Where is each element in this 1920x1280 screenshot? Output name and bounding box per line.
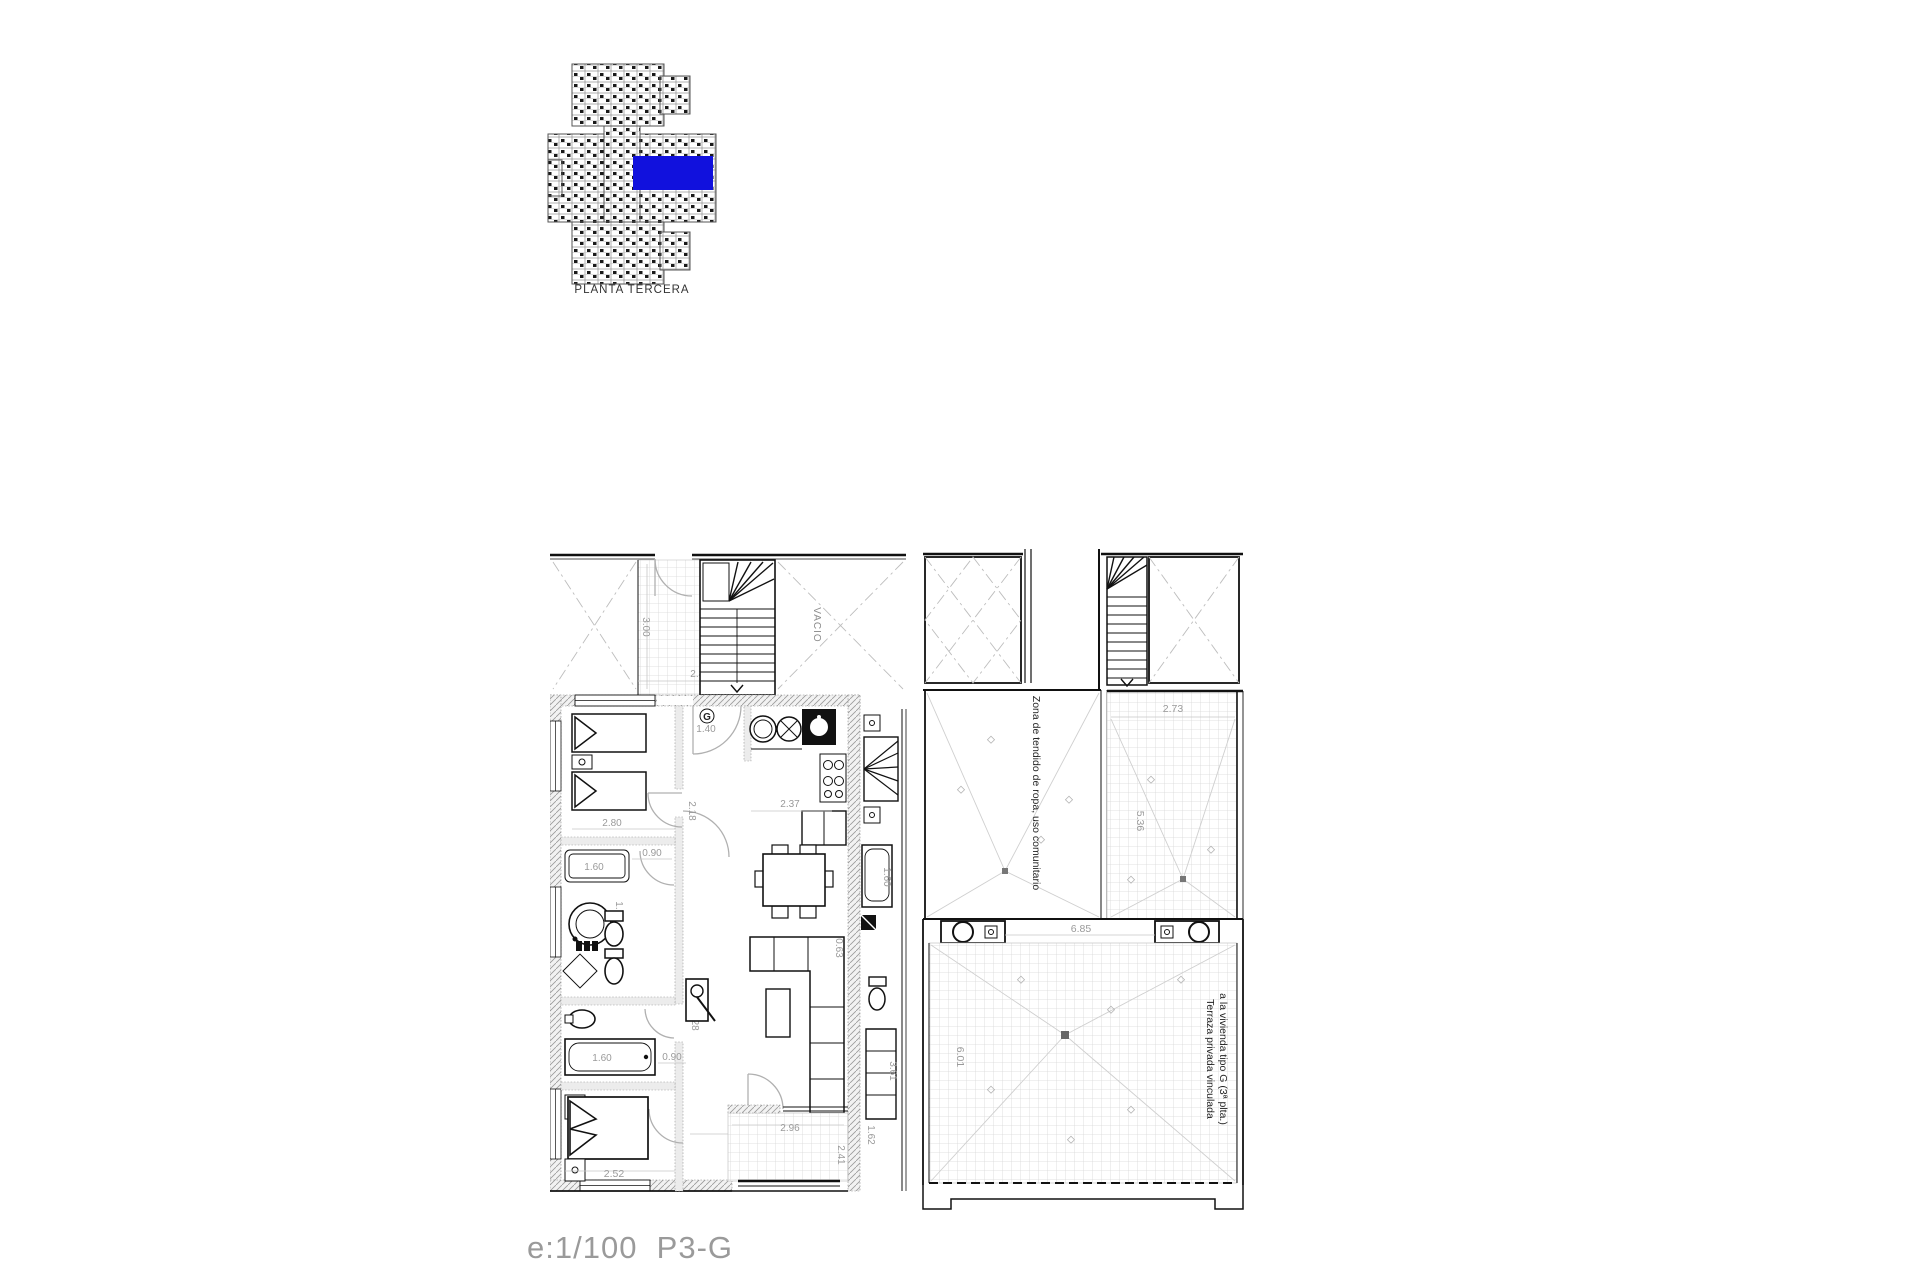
dim-label: 6.01 xyxy=(954,1047,966,1068)
dim-label: 1.62 xyxy=(865,1125,876,1145)
planter xyxy=(1155,921,1219,943)
bedroom-twin: 2.80 xyxy=(572,714,675,829)
towel-rail xyxy=(576,941,598,951)
window xyxy=(550,721,561,791)
unit-letter: G xyxy=(703,712,711,723)
shower-corner xyxy=(563,954,597,988)
neighbor-toilet xyxy=(869,977,886,1010)
drain xyxy=(1180,876,1186,882)
dim-label: 0.90 xyxy=(662,1052,682,1063)
hall: G 1.40 2.18 2.28 xyxy=(686,709,716,1031)
water-heater xyxy=(686,979,715,1021)
key-plan xyxy=(546,60,718,288)
terrace-floor-plan: Zona de tendido de ropa, uso comunitario… xyxy=(921,549,1246,1217)
dim-label: 1.60 xyxy=(584,862,604,873)
staircase xyxy=(700,560,775,695)
neighbor-washer xyxy=(861,915,876,930)
dim-label: 3.61 xyxy=(887,1061,898,1081)
corner-sofa xyxy=(750,937,844,1113)
planter-strip: 6.85 xyxy=(923,919,1243,943)
floor-plan-sheet: PLANTA TERCERA 3.00 xyxy=(0,0,1920,1280)
private-terrace-label-2: a la vivienda tipo G (3ª plta.) xyxy=(1217,993,1229,1125)
window xyxy=(550,887,561,957)
bedroom-double: 2.52 xyxy=(565,1095,675,1181)
double-bed xyxy=(568,1097,648,1159)
party-wall xyxy=(848,695,860,1191)
bathroom-1: 1.60 0.90 1.79 xyxy=(563,848,672,988)
single-bed xyxy=(572,772,646,810)
void-label: VACIO xyxy=(811,607,822,642)
parapet-outline xyxy=(923,1185,1243,1209)
scale-label: e:1/100 P3-G xyxy=(527,1230,733,1266)
roof-section xyxy=(923,549,1243,689)
upper-terrace: 2.73 5.36 xyxy=(1107,691,1243,919)
planter xyxy=(941,921,1005,943)
kitchen-peninsula xyxy=(802,811,846,845)
window xyxy=(550,1089,561,1159)
neighbor-bathtub: 1.60 xyxy=(862,845,892,907)
dim-label: 1.60 xyxy=(592,1053,612,1064)
dining-table xyxy=(763,854,825,906)
dining-area xyxy=(755,845,833,918)
coffee-table xyxy=(766,989,790,1037)
dim-label: 2.18 xyxy=(686,801,697,821)
neighbor-stair xyxy=(864,737,898,801)
apartment-floor-plan: 3.00 2.80 xyxy=(550,549,908,1211)
window xyxy=(580,1180,650,1191)
dim-label: 2.80 xyxy=(602,818,622,829)
kitchen: 2.37 xyxy=(750,709,846,845)
nightstand xyxy=(572,755,592,769)
dim-label: 2.96 xyxy=(780,1123,800,1134)
dim-label: 0.63 xyxy=(833,938,844,958)
staircase xyxy=(1107,557,1147,686)
dim-label: 5.36 xyxy=(1134,811,1146,832)
entry-opening xyxy=(657,696,693,705)
private-terrace-label-1: Terraza privada vinculada xyxy=(1204,999,1216,1119)
bathroom-2: 1.60 0.90 xyxy=(565,1010,686,1075)
keyplan-caption: PLANTA TERCERA xyxy=(536,284,728,296)
hob xyxy=(820,754,846,802)
dim-label: 2.41 xyxy=(835,1145,846,1165)
dim-label: 0.90 xyxy=(642,848,662,859)
dim-label: 2.73 xyxy=(1163,703,1184,715)
kitchen-sink xyxy=(802,709,836,745)
neighbor-apartment-strip: 1.60 3.61 1.62 xyxy=(861,709,906,1191)
drying-zone: Zona de tendido de ropa, uso comunitario xyxy=(923,690,1107,919)
door-swings xyxy=(640,706,783,1143)
dim-label: 3.00 xyxy=(640,617,651,637)
drain xyxy=(1061,1031,1069,1039)
dim-label: 6.85 xyxy=(1071,923,1092,935)
nightstand xyxy=(565,1159,585,1181)
drying-zone-label: Zona de tendido de ropa, uso comunitario xyxy=(1030,696,1042,891)
dim-label: 2.37 xyxy=(780,799,800,810)
toilet xyxy=(605,911,623,946)
dim-label: 1.60 xyxy=(881,867,892,887)
stair-landing-section: 3.00 2.80 xyxy=(550,552,906,695)
dim-label: 1.40 xyxy=(696,724,716,735)
dim-label: 2.52 xyxy=(604,1168,625,1180)
single-bed xyxy=(572,714,646,752)
apartment-terrace: 2.96 2.41 xyxy=(728,1105,848,1191)
highlighted-unit xyxy=(633,156,713,190)
landing-door-opening xyxy=(655,552,692,561)
private-terrace: 6.01 Terraza privada vinculada a la vivi… xyxy=(923,919,1243,1209)
bidet xyxy=(605,949,623,984)
drain xyxy=(1002,868,1008,874)
